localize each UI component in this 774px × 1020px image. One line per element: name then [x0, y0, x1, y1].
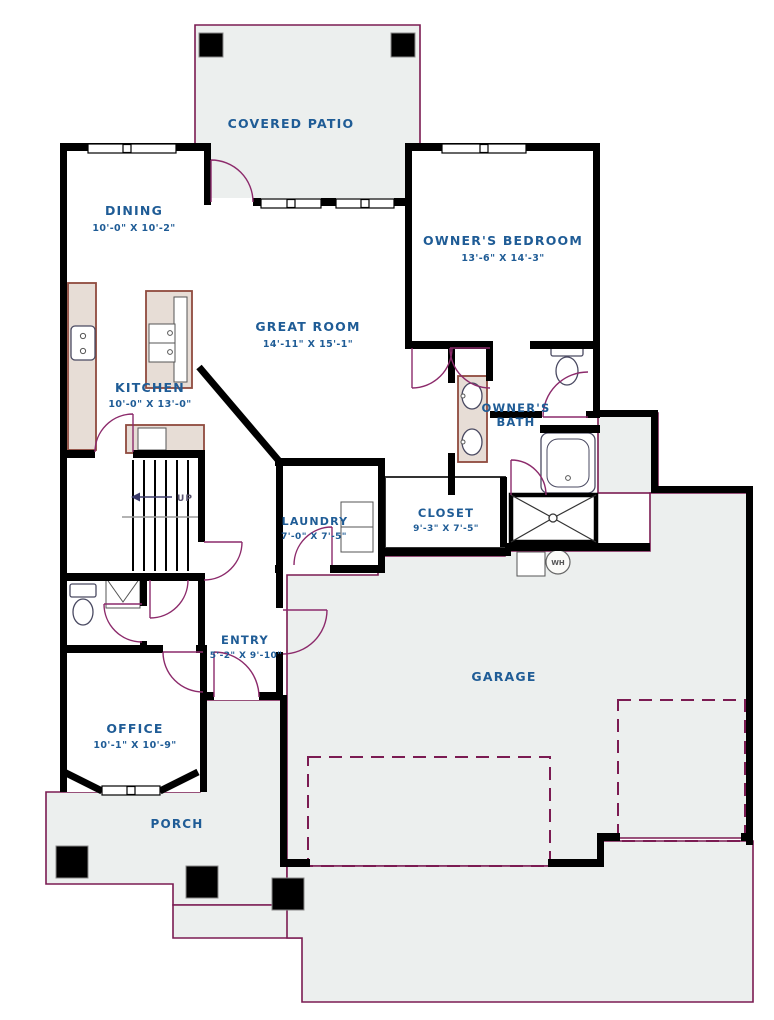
- toilet-bowl-icon: [73, 599, 93, 625]
- patio-post-icon: [391, 33, 415, 57]
- porch-post-icon: [56, 846, 88, 878]
- entry-dims: 5'-2" X 9'-10": [210, 651, 282, 661]
- kitchen-label: KITCHEN: [115, 380, 185, 395]
- closet-label: CLOSET: [418, 506, 474, 520]
- owners-bath-label-line1: OWNER'S: [482, 401, 551, 415]
- laundry-dims: 7'-0" X 7'-5": [281, 532, 347, 542]
- range-knob-icon: [168, 350, 173, 355]
- office-label: OFFICE: [106, 721, 163, 736]
- faucet-icon: [461, 394, 465, 398]
- owners-bedroom-dims: 13'-6" X 14'-3": [461, 253, 544, 264]
- closet-dims: 9'-3" X 7'-5": [413, 524, 479, 534]
- kitchen-sink-icon: [71, 326, 95, 360]
- dishwasher-icon: [138, 428, 166, 450]
- laundry-label: LAUNDRY: [282, 515, 349, 528]
- water-heater-label: WH: [551, 559, 565, 567]
- patio-post-icon: [199, 33, 223, 57]
- window-icon: [88, 144, 176, 153]
- range-knob-icon: [168, 331, 173, 336]
- island-countertop: [174, 297, 187, 382]
- dining-dims: 10'-0" X 10'-2": [92, 223, 175, 234]
- floor-plan: COVERED PATIO DINING 10'-0" X 10'-2" OWN…: [0, 0, 774, 1020]
- kitchen-wall-counter: [68, 283, 96, 450]
- floor-plan-canvas: COVERED PATIO DINING 10'-0" X 10'-2" OWN…: [0, 0, 774, 1020]
- utility-cabinet: [517, 552, 545, 576]
- porch-post-icon: [186, 866, 218, 898]
- covered-patio-label: COVERED PATIO: [228, 116, 355, 131]
- sink-basin-icon: [80, 348, 85, 353]
- porch-label: PORCH: [150, 817, 203, 831]
- covered-patio-slab: [195, 25, 420, 205]
- office-dims: 10'-1" X 10'-9": [93, 740, 176, 751]
- great-room-dims: 14'-11" X 15'-1": [263, 339, 353, 350]
- kitchen-dims: 10'-0" X 13'-0": [108, 399, 191, 410]
- great-room-label: GREAT ROOM: [255, 319, 360, 334]
- bathtub-icon: [541, 433, 595, 493]
- owners-bedroom-label: OWNER'S BEDROOM: [423, 233, 583, 248]
- toilet-tank-icon: [70, 584, 96, 597]
- dining-label: DINING: [105, 203, 163, 218]
- entry-label: ENTRY: [221, 633, 269, 647]
- drain-icon: [566, 476, 571, 481]
- sink-basin-icon: [80, 333, 85, 338]
- faucet-icon: [461, 440, 465, 444]
- stairs-up-label: UP: [177, 494, 193, 504]
- side-pad: [598, 413, 658, 493]
- porch-post-icon: [272, 878, 304, 910]
- garage-label: GARAGE: [471, 669, 536, 684]
- owners-bath-label-line2: BATH: [496, 415, 535, 429]
- toilet-bowl-icon: [556, 357, 578, 385]
